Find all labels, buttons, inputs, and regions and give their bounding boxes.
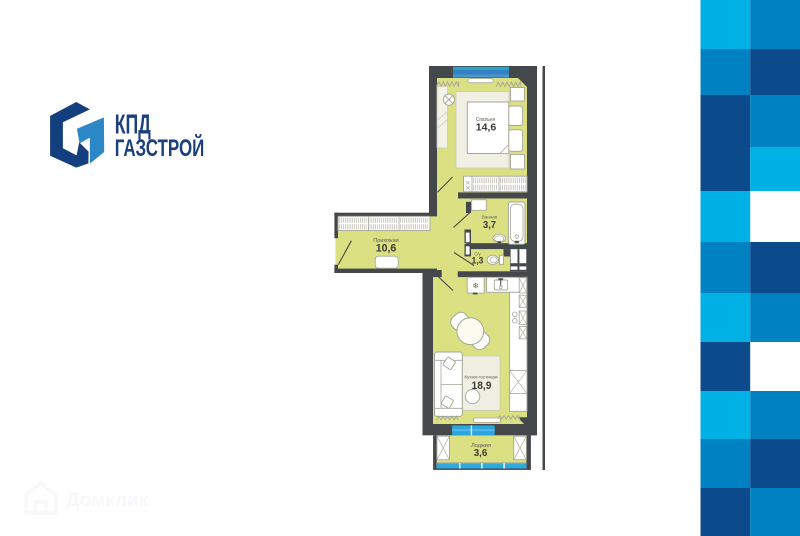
svg-text:18,9: 18,9	[472, 380, 492, 392]
svg-text:❄: ❄	[472, 281, 479, 290]
svg-text:10,6: 10,6	[376, 243, 397, 255]
svg-text:Кухня-гостиная: Кухня-гостиная	[464, 374, 498, 379]
svg-text:3,7: 3,7	[483, 219, 496, 231]
svg-text:14,6: 14,6	[476, 121, 497, 133]
svg-text:Домклик: Домклик	[66, 490, 149, 511]
svg-text:3,6: 3,6	[474, 448, 488, 459]
svg-text:ГАЗСТРОЙ: ГАЗСТРОЙ	[115, 134, 205, 162]
